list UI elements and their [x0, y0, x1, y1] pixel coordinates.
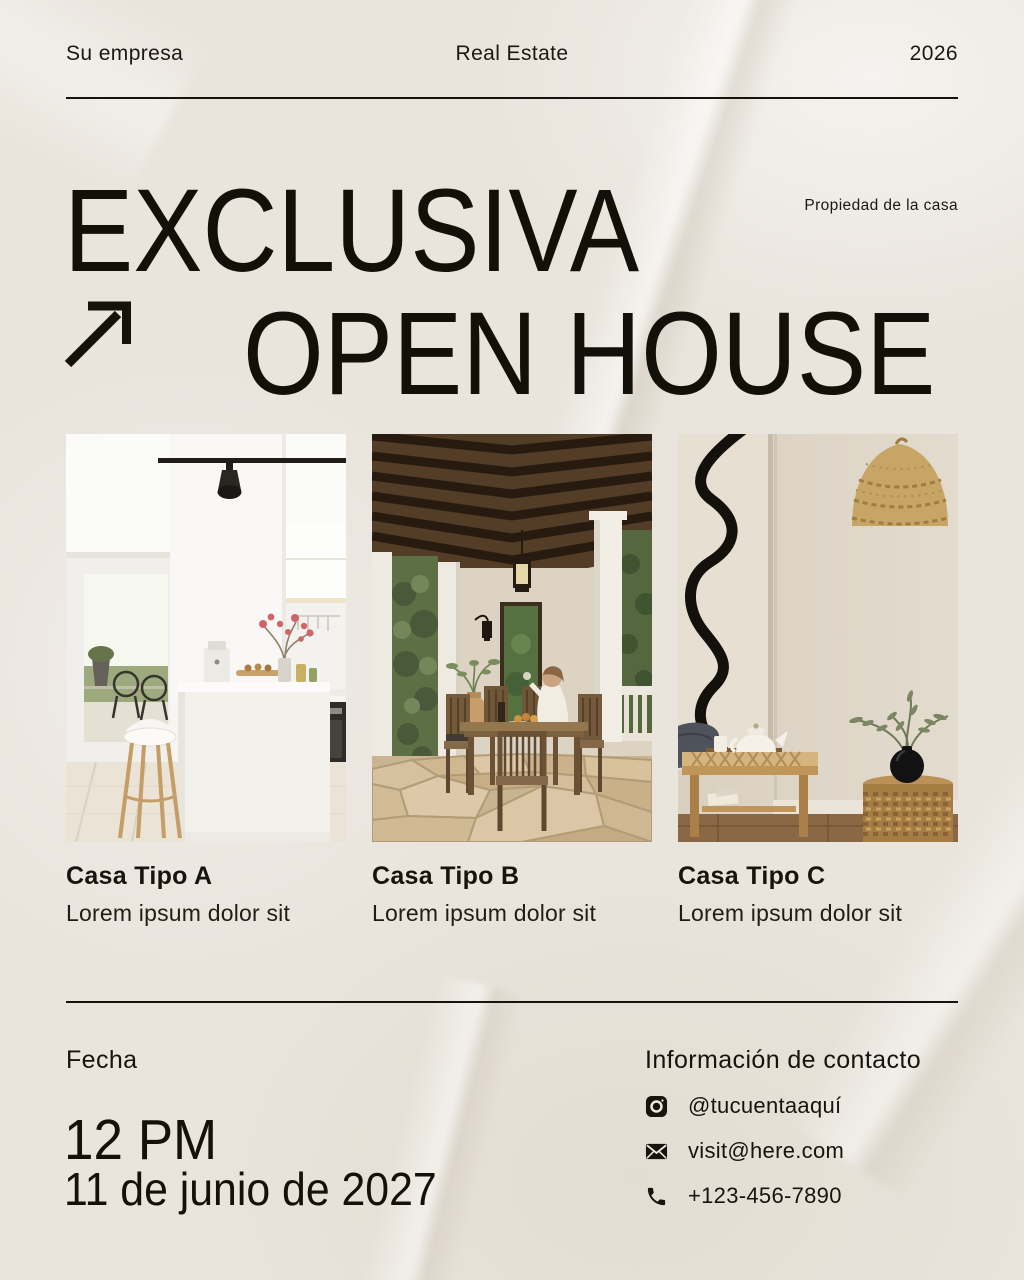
listing-subtitle: Lorem ipsum dolor sit	[66, 900, 290, 927]
listing-title: Casa Tipo A	[66, 862, 212, 891]
marble-vein	[319, 971, 552, 1280]
contact-label: Información de contacto	[645, 1046, 921, 1075]
flyer-poster: Su empresa Real Estate 2026 EXCLUSIVA Pr…	[0, 0, 1024, 1280]
instagram-icon	[645, 1095, 668, 1118]
email-address: visit@here.com	[688, 1138, 844, 1164]
photo-casa-tipo-a-kitchen	[66, 434, 346, 842]
listing-title: Casa Tipo B	[372, 862, 519, 891]
contact-row-phone: +123-456-7890	[645, 1184, 965, 1208]
phone-number: +123-456-7890	[688, 1183, 842, 1209]
patio-scene	[372, 434, 652, 842]
bottom-divider	[66, 1001, 958, 1003]
email-icon	[645, 1140, 668, 1163]
arrow-up-right-icon	[62, 294, 136, 368]
kitchen-scene	[66, 434, 346, 842]
phone-icon	[645, 1185, 668, 1208]
event-date: 11 de junio de 2027	[64, 1166, 437, 1212]
contact-row-email: visit@here.com	[645, 1139, 965, 1163]
instagram-handle: @tucuentaaquí	[688, 1093, 841, 1119]
listing-subtitle: Lorem ipsum dolor sit	[372, 900, 596, 927]
photo-casa-tipo-b-patio	[372, 434, 652, 842]
event-time: 12 PM	[64, 1112, 217, 1169]
top-divider	[66, 97, 958, 99]
date-label: Fecha	[66, 1046, 137, 1075]
property-tagline: Propiedad de la casa	[804, 197, 958, 215]
listing-title: Casa Tipo C	[678, 862, 825, 891]
year-label: 2026	[910, 42, 958, 66]
contact-list: @tucuentaaquí visit@here.com +123-456-78…	[645, 1094, 965, 1229]
hero-title-line2: OPEN HOUSE	[243, 295, 935, 413]
category-label: Real Estate	[0, 42, 1024, 66]
photo-casa-tipo-c-decor	[678, 434, 958, 842]
listing-subtitle: Lorem ipsum dolor sit	[678, 900, 902, 927]
contact-row-instagram: @tucuentaaquí	[645, 1094, 965, 1118]
decor-scene	[678, 434, 958, 842]
hero-title-line1: EXCLUSIVA	[64, 172, 639, 290]
